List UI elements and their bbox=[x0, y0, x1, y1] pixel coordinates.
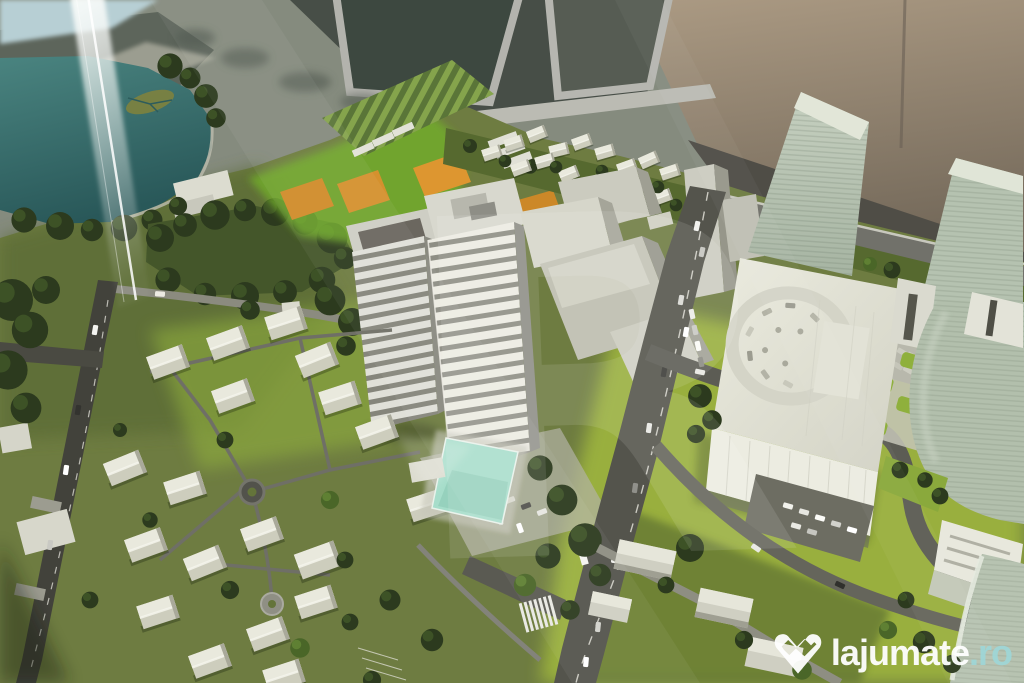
tree bbox=[221, 581, 239, 599]
tree bbox=[12, 312, 48, 348]
tree bbox=[273, 280, 297, 304]
tree bbox=[155, 267, 180, 292]
tree bbox=[82, 592, 99, 609]
watermark-text: lajumate.ro bbox=[831, 635, 1012, 671]
tree bbox=[157, 53, 182, 78]
watermark-brand: lajumate bbox=[831, 632, 969, 673]
tree bbox=[32, 276, 60, 304]
tree bbox=[240, 300, 260, 320]
car bbox=[155, 291, 165, 297]
watermark-tld: .ro bbox=[969, 632, 1012, 673]
tree bbox=[336, 336, 356, 356]
tree bbox=[113, 423, 127, 437]
tree bbox=[342, 614, 359, 631]
tree bbox=[380, 590, 401, 611]
tree bbox=[46, 212, 74, 240]
tree bbox=[863, 257, 877, 271]
tree bbox=[11, 207, 36, 232]
roundabout-center bbox=[248, 488, 257, 497]
tree bbox=[290, 638, 310, 658]
lajumate-heart-w-icon bbox=[773, 631, 823, 675]
tree bbox=[932, 488, 949, 505]
tree bbox=[173, 213, 197, 237]
tree bbox=[884, 262, 901, 279]
white-slab bbox=[0, 423, 32, 454]
tree bbox=[321, 491, 339, 509]
tree bbox=[142, 512, 157, 527]
tree bbox=[234, 199, 256, 221]
pad-center bbox=[268, 600, 276, 608]
model-photo: R lajumate.ro bbox=[0, 0, 1024, 683]
lajumate-watermark: lajumate.ro bbox=[773, 631, 1012, 675]
scale-model-scene: R bbox=[0, 0, 1024, 683]
tree bbox=[337, 552, 354, 569]
ghost-watermark-letter: R bbox=[385, 112, 811, 672]
tree bbox=[146, 224, 174, 252]
tree bbox=[81, 219, 103, 241]
tree bbox=[917, 472, 932, 487]
tree bbox=[217, 432, 234, 449]
tree bbox=[11, 393, 42, 424]
tree bbox=[169, 197, 187, 215]
tree bbox=[200, 200, 229, 229]
